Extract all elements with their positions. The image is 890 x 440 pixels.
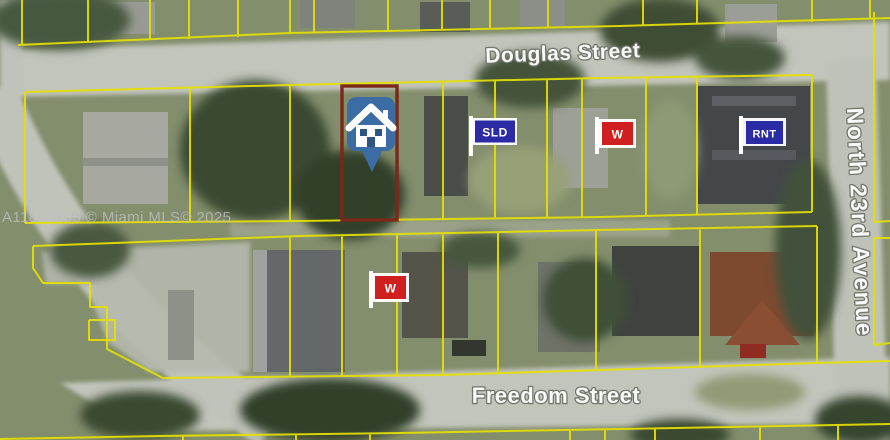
house-door [367,137,375,147]
alley-strip [230,220,670,237]
tree-canopy [440,232,520,268]
building-roof [420,2,470,32]
house-window [360,129,367,136]
building-roof-ridge [83,158,168,166]
warehouse-roof-edge [253,250,267,372]
tree-canopy [240,378,420,440]
mls-watermark: A11875085 © Miami MLS© 2025 [2,209,231,226]
apartment-roof-detail [712,150,796,160]
grass-patch [642,100,698,200]
flag-label-rnt: RNT [752,129,776,141]
grass-patch [695,374,805,410]
map-canvas[interactable]: A11875085 © Miami MLS© 2025 Douglas Stre… [0,0,890,440]
street-label-freedom: Freedom Street [472,383,641,408]
tree-canopy [775,160,841,340]
flag-label-w: W [385,282,397,296]
tree-canopy [695,36,785,80]
building-roof [168,290,194,360]
mls-map-view: A11875085 © Miami MLS© 2025 Douglas Stre… [0,0,890,440]
tree-canopy [295,150,405,240]
apartment-roof-detail [712,96,796,106]
parked-car [452,340,486,356]
flag-pole [739,116,743,154]
building-roof [300,0,355,28]
parked-car [740,344,766,358]
house-window [375,129,382,136]
grass-patch [470,147,570,213]
tree-canopy [50,222,130,278]
tree-canopy [543,258,627,342]
flag-label-sld: SLD [482,126,508,140]
building-roof [424,96,468,196]
flag-label-w: W [612,128,624,142]
flag-pole [595,117,599,154]
tree-canopy [80,391,200,439]
building-roof [520,0,565,26]
